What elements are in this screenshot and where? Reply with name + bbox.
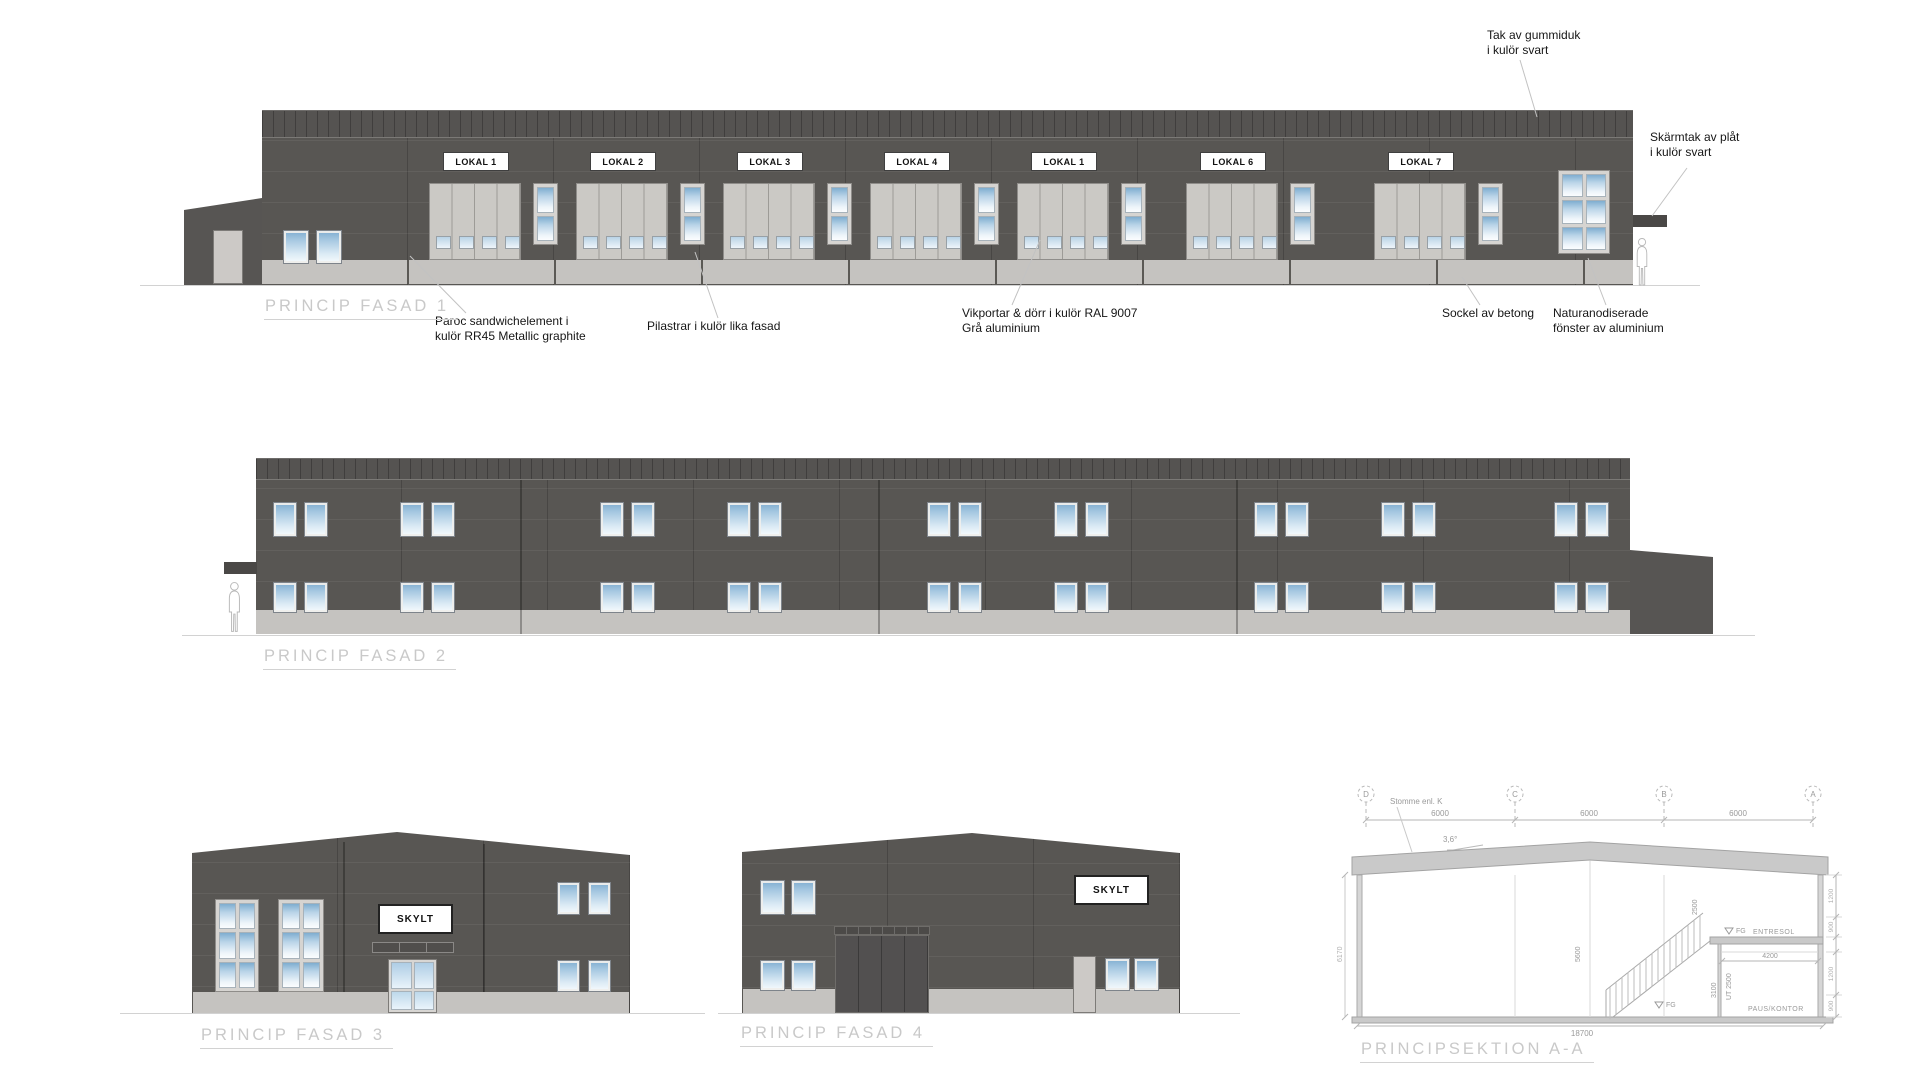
door-leaf [391, 962, 412, 1010]
annotation-pilasters: Pilastrar i kulör lika fasad [647, 319, 780, 334]
annotation-windows: Naturanodiserade fönster av aluminium [1553, 306, 1664, 335]
window-pane [1586, 200, 1607, 223]
lokal-label: LOKAL 4 [884, 152, 950, 171]
level-marker-upper: FG [1736, 928, 1746, 935]
fasad2-title: PRINCIP FASAD 2 [263, 647, 456, 670]
door-window [436, 236, 451, 249]
fasad1-annex-door [213, 230, 243, 284]
door-window [1024, 236, 1039, 249]
window-pane [219, 962, 236, 988]
fasad2-window [1554, 502, 1578, 537]
window-pane [1586, 174, 1607, 197]
room-width-dim: 4200 [1762, 953, 1778, 960]
door-window [652, 236, 667, 249]
fasad2-window [1054, 502, 1078, 537]
facade-joint [483, 844, 485, 992]
window-pane [239, 962, 256, 988]
bay-side-window [974, 183, 999, 245]
window-pane [303, 962, 321, 988]
door-window [1216, 236, 1231, 249]
door-window [505, 236, 520, 249]
fasad2-window [1254, 582, 1278, 613]
bay-side-window [533, 183, 558, 245]
fasad2-window [304, 582, 328, 613]
fasad2-window [1085, 502, 1109, 537]
door-window [1193, 236, 1208, 249]
bay-side-window [827, 183, 852, 245]
interior-height-dim: 5600 [1575, 946, 1582, 962]
vikport-door [1186, 183, 1278, 260]
span-dim: 6000 [1729, 809, 1747, 818]
door-window [1093, 236, 1108, 249]
fasad4-window [760, 880, 785, 915]
fasad4-window [760, 960, 785, 991]
grid-bubble-label: A [1810, 790, 1816, 799]
fasad4-title: PRINCIP FASAD 4 [740, 1024, 933, 1047]
window-pane [282, 903, 300, 929]
facade-joint [343, 842, 345, 992]
fasad2-window [1412, 582, 1436, 613]
fasad2-window [727, 582, 751, 613]
fasad4-window [791, 960, 816, 991]
right-dim: 900 [1828, 921, 1835, 932]
fasad2-window [1585, 502, 1609, 537]
fasad4-window [1105, 958, 1130, 991]
span-dim: 6000 [1431, 809, 1449, 818]
fasad2-window [273, 582, 297, 613]
door-window [799, 236, 814, 249]
section-roof [1352, 842, 1828, 875]
window-pane [303, 932, 321, 958]
stair-height-dim: 2500 [1692, 899, 1699, 915]
window-pane [239, 903, 256, 929]
fasad2-window [631, 582, 655, 613]
vikport-door [576, 183, 668, 260]
fasad2-window [758, 582, 782, 613]
vikport-door [1374, 183, 1466, 260]
fasad3-window [588, 882, 611, 915]
fasad1-title: PRINCIP FASAD 1 [264, 297, 457, 320]
fasad2-window [927, 502, 951, 537]
door-window [1070, 236, 1085, 249]
window-pane [219, 903, 236, 929]
fasad3-window [557, 960, 580, 992]
window-pane [282, 932, 300, 958]
fasad4-door-lintel [834, 926, 930, 935]
vikport-door [429, 183, 521, 260]
door-window [1047, 236, 1062, 249]
window-pane [1562, 227, 1583, 250]
fasad4-drawing: SKYLT [742, 833, 1180, 1013]
fasad2-window [1285, 502, 1309, 537]
fasad2-window [431, 582, 455, 613]
door-window [753, 236, 768, 249]
right-dim: 1200 [1828, 966, 1835, 981]
door-window [606, 236, 621, 249]
fasad2-window [1412, 502, 1436, 537]
window-pane [303, 903, 321, 929]
fasad1-window [283, 230, 309, 264]
fasad3-window-grid [278, 899, 324, 992]
window-pane [978, 187, 995, 213]
door-window [946, 236, 961, 249]
window-pane [239, 932, 256, 958]
fasad2-window [273, 502, 297, 537]
window-pane [1125, 187, 1142, 213]
window-pane [1125, 216, 1142, 242]
window-pane [1586, 227, 1607, 250]
fasad2-window [631, 502, 655, 537]
window-pane [1482, 216, 1499, 242]
door-window [1404, 236, 1419, 249]
annotation-walls: Paroc sandwichelement i kulör RR45 Metal… [435, 314, 586, 343]
lokal-label: LOKAL 7 [1388, 152, 1454, 171]
fasad2-window [958, 502, 982, 537]
window-pane [978, 216, 995, 242]
lokal-label: LOKAL 6 [1200, 152, 1266, 171]
fasad2-window [400, 502, 424, 537]
section-left-wall [1357, 875, 1362, 1017]
fasad1-canopy [1633, 215, 1667, 227]
lokal-label: LOKAL 1 [443, 152, 509, 171]
grid-bubble-label: C [1512, 790, 1518, 799]
grid-bubble-label: D [1363, 790, 1369, 799]
door-window [629, 236, 644, 249]
annotation-roof: Tak av gummiduk i kulör svart [1487, 28, 1580, 57]
person-icon [229, 583, 239, 632]
door-window [730, 236, 745, 249]
fasad2-sockel [256, 610, 1630, 634]
door-leaf [414, 962, 435, 1010]
bay-side-window [1478, 183, 1503, 245]
fasad3-entrance-door [388, 959, 437, 1013]
window-pane [1562, 174, 1583, 197]
fasad2-window [304, 502, 328, 537]
window-pane [831, 216, 848, 242]
fasad2-window [927, 582, 951, 613]
door-window [1381, 236, 1396, 249]
fasad1-corner-window-grid [1558, 170, 1610, 254]
fasad4-door [1073, 956, 1096, 1013]
right-dim: 900 [1828, 1000, 1835, 1011]
vikport-door [870, 183, 962, 260]
fasad2-window [400, 582, 424, 613]
fasad2-right-annex [1630, 547, 1713, 634]
left-height-dim: 6170 [1337, 946, 1344, 962]
door-window [1239, 236, 1254, 249]
window-pane [1482, 187, 1499, 213]
mezzanine-slab [1710, 937, 1823, 944]
fasad2-window [1381, 502, 1405, 537]
window-pane [537, 216, 554, 242]
annotation-base: Sockel av betong [1442, 306, 1534, 321]
section-drawing: D C B A 6000 6000 6000 Stomme enl. K 3,6… [1337, 786, 1842, 1038]
fasad2-window [1285, 582, 1309, 613]
annotation-canopy: Skärmtak av plåt i kulör svart [1650, 130, 1739, 159]
fasad2-window [1381, 582, 1405, 613]
level-marker-lower: FG [1666, 1002, 1676, 1009]
facade-joint [520, 480, 522, 634]
stair [1606, 913, 1710, 1019]
fasad2-window [600, 502, 624, 537]
sektion-title: PRINCIPSEKTION A-A [1360, 1040, 1594, 1063]
door-window [1450, 236, 1465, 249]
room-wall [1718, 944, 1721, 1017]
fasad2-window [758, 502, 782, 537]
lokal-label: LOKAL 3 [737, 152, 803, 171]
fasad2-window [1585, 582, 1609, 613]
level-marker-icon [1725, 928, 1733, 934]
frame-note: Stomme enl. K [1390, 797, 1443, 806]
window-pane [282, 962, 300, 988]
bay-side-window [1290, 183, 1315, 245]
fasad4-sockel [1096, 989, 1179, 1013]
door-window [459, 236, 474, 249]
fasad2-canopy [224, 562, 257, 574]
window-pane [831, 187, 848, 213]
vikport-door [1017, 183, 1109, 260]
fasad1-parapet [262, 110, 1633, 138]
door-window [923, 236, 938, 249]
fasad3-drawing: SKYLT [192, 832, 630, 1013]
fasad3-title: PRINCIP FASAD 3 [200, 1026, 393, 1049]
fasad2-parapet [256, 458, 1630, 480]
lokal-label: LOKAL 2 [590, 152, 656, 171]
fasad2-window [1554, 582, 1578, 613]
fasad3-window-grid [215, 899, 259, 992]
fasad4-sockel [929, 989, 1073, 1013]
window-pane [219, 932, 236, 958]
fasad2-window [1085, 582, 1109, 613]
fasad1-window [316, 230, 342, 264]
fasad3-sign: SKYLT [378, 904, 453, 934]
room-height-dim: 3100 [1711, 982, 1718, 998]
door-window [1262, 236, 1277, 249]
fasad3-window [557, 882, 580, 915]
window-pane [1562, 200, 1583, 223]
bay-side-window [1121, 183, 1146, 245]
lokal-label: LOKAL 1 [1031, 152, 1097, 171]
bay-side-window [680, 183, 705, 245]
mezzanine-label: ENTRESOL [1753, 929, 1795, 936]
window-pane [1294, 216, 1311, 242]
section-right-wall [1818, 875, 1823, 1017]
fasad4-sign: SKYLT [1074, 875, 1149, 905]
fasad2-window [1254, 502, 1278, 537]
fasad4-sockel [743, 989, 835, 1013]
span-dim: 6000 [1580, 809, 1598, 818]
facade-joint [878, 480, 880, 634]
window-pane [684, 216, 701, 242]
window-pane [537, 187, 554, 213]
vikport-door [723, 183, 815, 260]
facade-joint [1236, 480, 1238, 634]
window-pane [1294, 187, 1311, 213]
person-icon [1637, 239, 1647, 286]
drawing-sheet: LOKAL 1LOKAL 2LOKAL 3LOKAL 4LOKAL 1LOKAL… [0, 0, 1920, 1080]
fasad4-industrial-door [835, 935, 929, 1013]
door-window [900, 236, 915, 249]
grid-bubble-label: B [1661, 790, 1666, 799]
right-dim: 1200 [1828, 888, 1835, 903]
clear-height-dim: UT 2500 [1726, 973, 1733, 1000]
annotation-doors: Vikportar & dörr i kulör RAL 9007 Grå al… [962, 306, 1137, 335]
fasad4-window [791, 880, 816, 915]
section-floor-slab [1352, 1017, 1833, 1023]
fasad4-window [1134, 958, 1159, 991]
roof-slope: 3,6° [1443, 835, 1457, 844]
fasad3-transom-window [372, 942, 454, 953]
room-label: PAUS/KONTOR [1748, 1006, 1804, 1013]
fasad2-window [727, 502, 751, 537]
door-window [583, 236, 598, 249]
fasad2-window [600, 582, 624, 613]
fasad2-window [431, 502, 455, 537]
door-window [1427, 236, 1442, 249]
level-marker-icon [1655, 1002, 1663, 1008]
fasad3-window [588, 960, 611, 992]
fasad1-sockel [262, 260, 1633, 284]
door-window [877, 236, 892, 249]
total-width-dim: 18700 [1571, 1029, 1594, 1038]
window-pane [684, 187, 701, 213]
door-window [482, 236, 497, 249]
fasad2-window [958, 582, 982, 613]
door-window [776, 236, 791, 249]
fasad2-window [1054, 582, 1078, 613]
